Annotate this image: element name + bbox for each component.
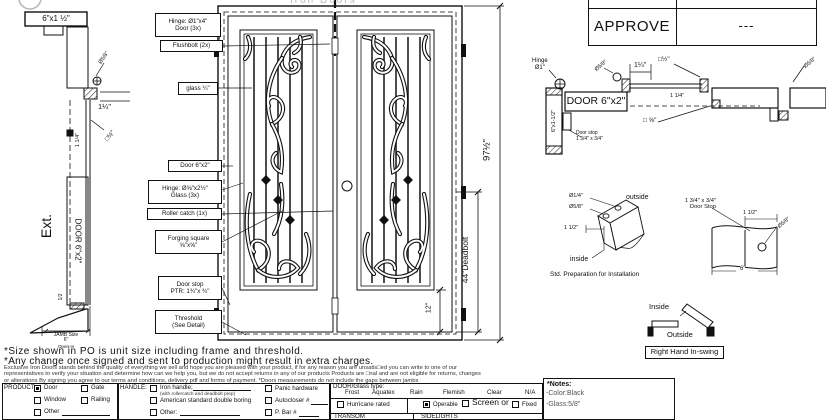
glass-type-aquatex[interactable]: Aquatex (372, 390, 395, 397)
plan-hinge-label: Hinge Ø1" (532, 58, 548, 71)
glass-row-divider-1 (330, 398, 543, 399)
operable-label: Operable (433, 402, 458, 409)
glass-type-rain[interactable]: Rain (410, 390, 423, 397)
jamb-door-size-label: DOOR 6"x2" (74, 219, 83, 264)
product-gate-label: Gate (91, 385, 104, 392)
bottom-rail-dim: 12" (426, 303, 433, 313)
hurricane-rated-label: Hurricane rated (347, 402, 390, 409)
swing-outside-label: Outside (667, 331, 693, 339)
fixed-label: Fixed (522, 402, 537, 409)
fine-print-1: Exclusive Iron Doors stands behind the q… (4, 365, 457, 371)
stop-detail-label: 1 3/4" x 3/4" Door Stop (672, 198, 716, 211)
prep-dim112: 1 1/2" (564, 225, 578, 231)
door-elevation-view (214, 0, 466, 340)
handle-iron-checkbox[interactable] (150, 385, 157, 392)
swing-direction-badge: Right Hand In-swing (645, 346, 724, 359)
glass-type-frost[interactable]: Frost (345, 390, 359, 397)
handle-american-checkbox[interactable] (150, 397, 157, 404)
product-other-checkbox[interactable] (34, 409, 41, 416)
leaf-thickness-dim: 1 1/4" (75, 133, 81, 147)
operable-checkbox[interactable] (423, 401, 430, 408)
order-notes-glass: -Glass:5/8" (546, 401, 580, 409)
product-window-checkbox[interactable] (34, 397, 41, 404)
plan-doorstop-label: Door stop 1 3/4" x 3/4" (576, 131, 603, 142)
product-gate-checkbox[interactable] (81, 385, 88, 392)
hurricane-col-divider (407, 398, 408, 413)
left-jamb-section-view (25, 12, 130, 336)
callout-hinge-glass: Hinge: Ø⅝"x2½" Glass (3x) (148, 180, 222, 204)
stop-dim112: 1 1/2" (743, 210, 757, 216)
plan-square-half: □½" (658, 56, 670, 63)
pbar-checkbox[interactable] (265, 409, 272, 416)
callout-roller-catch: Roller catch (1x) (147, 208, 222, 220)
prep-dia14: Ø1/4" (569, 193, 583, 199)
approve-label: APPROVE (588, 9, 676, 45)
product-railing-label: Railing (91, 397, 110, 404)
prep-outside-label: outside (626, 194, 649, 202)
jamb-header-size-label: 6"x1 ½" (25, 12, 87, 26)
handle-label: HANDLE: (120, 385, 147, 392)
autocloser-label: Autocloser # (275, 398, 309, 405)
prep-caption: Std. Preparation for Installation (550, 271, 639, 278)
jamb-gap-dim: 1¼" (98, 103, 111, 111)
brand-name-faint: Iron Doors (290, 0, 357, 6)
autocloser-checkbox[interactable] (265, 397, 272, 404)
callout-door-stop: Door stop PTR: 1¾"x ¾" (158, 276, 222, 300)
glass-type-flemish[interactable]: Flemish (443, 390, 465, 397)
stop-width-dim: 6" (740, 266, 745, 273)
product-other-label: Other (44, 409, 59, 416)
swing-inside-label: Inside (649, 303, 669, 311)
order-notes-color: -Color:Black (546, 390, 584, 398)
glass-type-na[interactable]: N/A (525, 390, 535, 397)
screen-checkbox[interactable] (462, 400, 469, 407)
fixed-checkbox[interactable] (512, 401, 519, 408)
order-notes-title: *Notes: (547, 381, 572, 389)
panic-hardware-label: Panic hardware (275, 386, 318, 393)
prep-inside-label: inside (570, 256, 588, 264)
shop-drawing-sheet: Iron Doors APPROVE --- 6"x1 ½" Ø5/8" 1¼"… (0, 0, 826, 420)
prep-dia58: Ø5/8" (569, 204, 583, 210)
callout-threshold: Threshold (See Detail) (155, 310, 222, 334)
overall-height-dim: 97½" (482, 139, 493, 161)
handle-other-checkbox[interactable] (150, 409, 157, 416)
scrollwork-right-panel (364, 37, 429, 283)
product-window-label: Window (44, 397, 66, 404)
panic-hardware-checkbox[interactable] (265, 385, 272, 392)
handle-other-blank[interactable] (180, 415, 240, 416)
handle-iron-blank[interactable] (193, 390, 251, 391)
threshold-half-dim: 1/2 (58, 294, 64, 301)
elevation-dimensions (436, 3, 504, 343)
product-door-label: Door (44, 385, 57, 392)
handle-american-label: American standard double boring (160, 398, 251, 405)
plan-stile-dim: 1 1/4" (670, 93, 684, 99)
approve-value: --- (676, 8, 817, 45)
product-railing-checkbox[interactable] (81, 397, 88, 404)
product-other-blank[interactable] (62, 415, 110, 416)
handle-other-label: Other: (160, 410, 177, 417)
handle-iron-label: Iron handle; (160, 385, 193, 392)
fine-print-2: representatives to verify your situation… (4, 371, 481, 377)
sidelights-label: SIDELIGHTS (421, 414, 458, 420)
callout-glass: glass ¼" (178, 82, 218, 95)
product-label: PRODUCT: (4, 385, 36, 392)
callout-hinge-door: Hinge: Ø1"x4" Door (3x) (155, 13, 221, 37)
transom-label: TRANSOM (334, 414, 365, 420)
callout-forging-square: Forging square ⅝"x⅝" (155, 230, 222, 254)
scrollwork-left-panel (245, 37, 310, 283)
callout-flushbolt: Flushbolt (2x) (160, 40, 223, 52)
glass-type-clear[interactable]: Clear (487, 390, 502, 397)
plan-door-size-label: DOOR 6"x2" (566, 94, 626, 109)
callout-door-size: Door 6"x2" (168, 160, 222, 172)
door-stop-detail (712, 208, 777, 275)
pbar-blank[interactable] (299, 416, 319, 417)
transom-col-divider (413, 413, 414, 420)
exterior-label: Ext. (38, 214, 54, 238)
brand-logo-arc (19, 0, 41, 9)
plan-square-58: □ ⅝" (643, 117, 656, 124)
autocloser-blank[interactable] (311, 404, 328, 405)
product-door-checkbox[interactable] (34, 385, 41, 392)
plan-jamb-size: 6"x1-1/2" (551, 110, 557, 132)
pbar-label: P. Bar # (275, 410, 297, 417)
plan-gap-dim: 1¼" (634, 62, 646, 70)
screen-or-label: Screen or (472, 398, 509, 408)
hurricane-rated-checkbox[interactable] (337, 401, 344, 408)
deadbolt-height-dim: 44"Deadbolt (460, 237, 470, 284)
installation-prep-detail (586, 198, 644, 258)
